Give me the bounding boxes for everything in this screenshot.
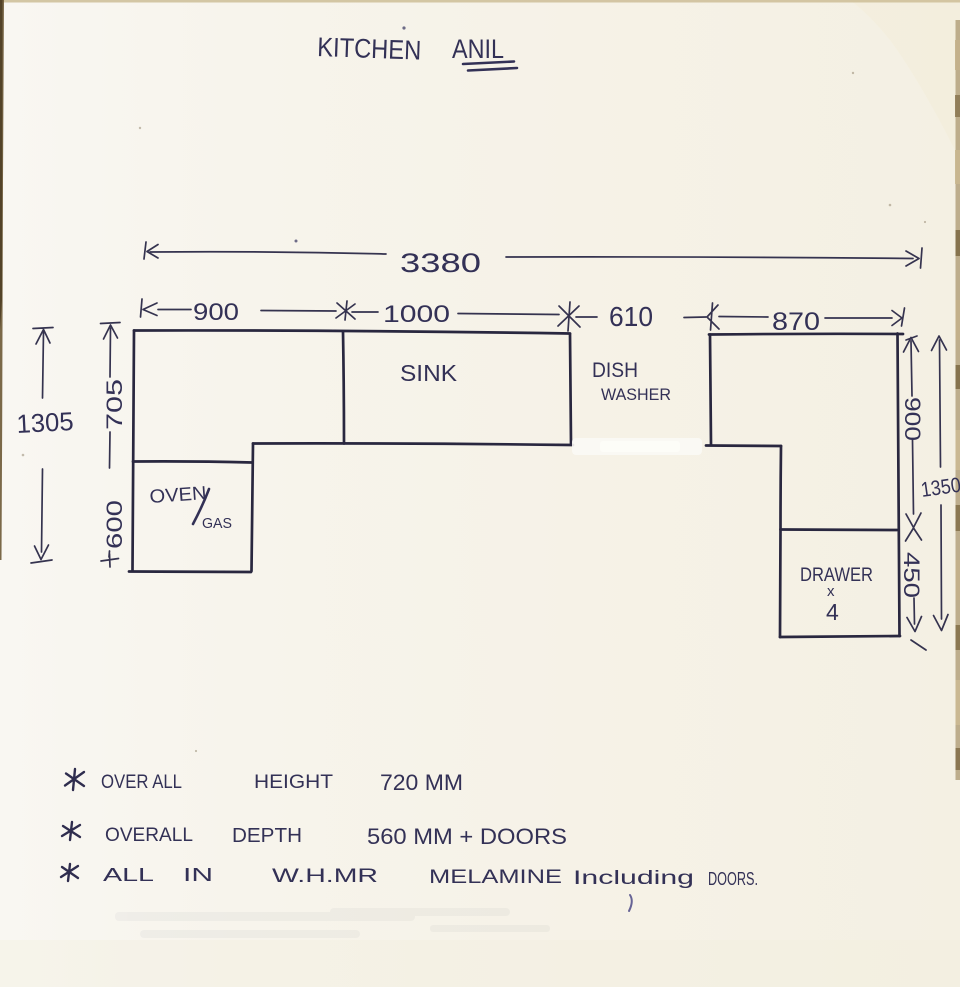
svg-text:870: 870 bbox=[772, 308, 820, 336]
svg-text:1305: 1305 bbox=[16, 406, 74, 439]
svg-text:3380: 3380 bbox=[400, 248, 481, 278]
svg-text:560 MM + DOORS: 560 MM + DOORS bbox=[367, 824, 567, 849]
svg-text:x: x bbox=[827, 583, 835, 600]
svg-text:720 MM: 720 MM bbox=[380, 770, 463, 795]
svg-text:450: 450 bbox=[899, 552, 924, 598]
svg-text:HEIGHT: HEIGHT bbox=[254, 772, 333, 793]
svg-text:705: 705 bbox=[102, 379, 127, 430]
svg-text:DOORS.: DOORS. bbox=[708, 869, 758, 889]
svg-text:900: 900 bbox=[900, 397, 925, 441]
svg-text:610: 610 bbox=[609, 301, 653, 332]
svg-text:DISH: DISH bbox=[592, 359, 638, 382]
svg-text:ALL: ALL bbox=[103, 865, 154, 885]
svg-text:600: 600 bbox=[102, 500, 127, 549]
svg-text:DEPTH: DEPTH bbox=[232, 825, 302, 847]
svg-text:MELAMINE: MELAMINE bbox=[429, 867, 562, 888]
svg-text:4: 4 bbox=[826, 599, 839, 625]
svg-text:SINK: SINK bbox=[400, 360, 458, 386]
svg-text:OVER ALL: OVER ALL bbox=[101, 772, 182, 793]
svg-text:GAS: GAS bbox=[202, 515, 232, 532]
svg-text:900: 900 bbox=[193, 299, 239, 326]
svg-text:OVEN: OVEN bbox=[149, 483, 207, 508]
svg-text:KITCHEN: KITCHEN bbox=[317, 32, 422, 66]
svg-text:ANIL: ANIL bbox=[452, 34, 504, 64]
svg-text:W.H.MR: W.H.MR bbox=[272, 866, 378, 887]
svg-text:IN: IN bbox=[183, 865, 213, 885]
svg-text:WASHER: WASHER bbox=[601, 385, 671, 404]
svg-text:1000: 1000 bbox=[383, 301, 450, 328]
svg-text:Including: Including bbox=[573, 868, 694, 889]
svg-text:DRAWER: DRAWER bbox=[800, 565, 873, 586]
svg-text:OVERALL: OVERALL bbox=[105, 825, 193, 846]
